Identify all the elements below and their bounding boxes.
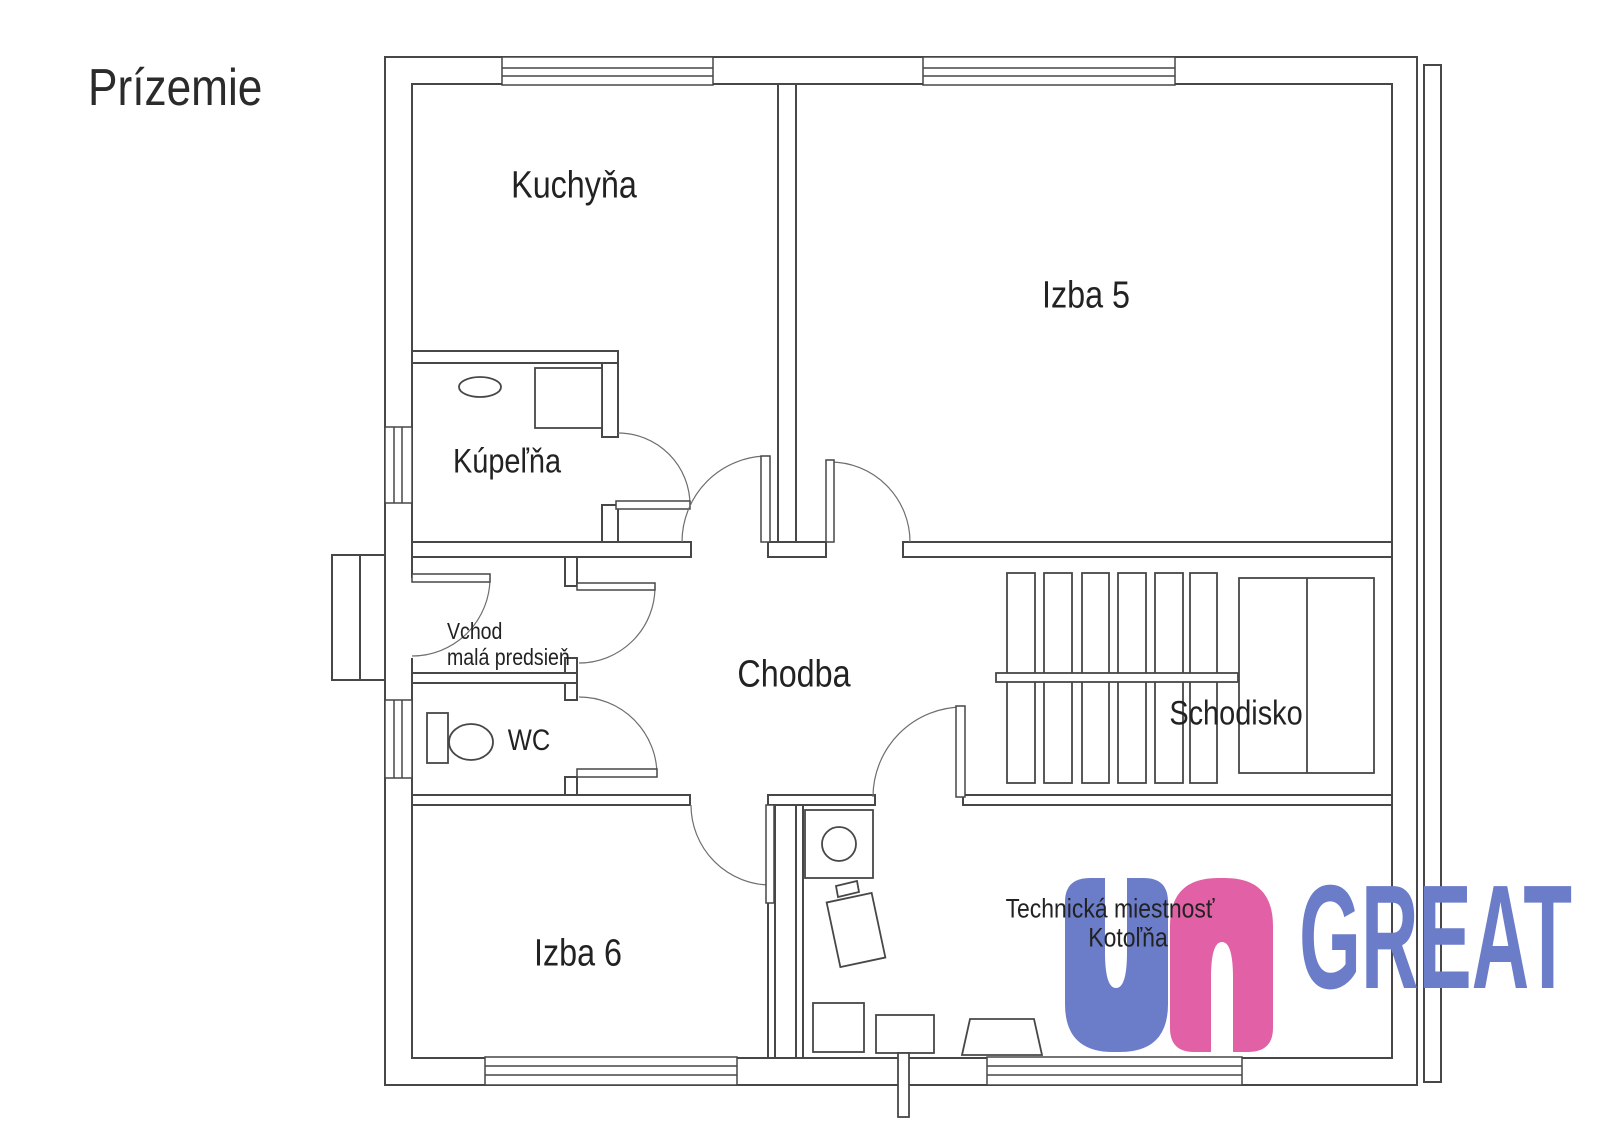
floor-plan-page: GREAT Prízemie Kuchyňa Izba 5 Kúpeľňa Vc… — [0, 0, 1600, 1131]
label-bathroom: Kúpeľňa — [453, 443, 561, 482]
tilted-equipment — [827, 893, 886, 967]
label-staircase: Schodisko — [1169, 695, 1302, 734]
logo: GREAT — [1065, 855, 1572, 1052]
door-room5 — [826, 460, 910, 542]
window-wc-left — [385, 700, 412, 778]
window-room5-top — [923, 57, 1175, 85]
label-entrance-line2: malá predsieň — [447, 644, 570, 670]
label-hallway: Chodba — [737, 654, 850, 697]
window-technical-bottom — [987, 1057, 1242, 1085]
page-title: Prízemie — [88, 58, 262, 118]
label-entrance: Vchod malá predsieň — [447, 618, 570, 670]
window-bathroom-left — [385, 427, 412, 503]
door-kitchen — [682, 456, 770, 542]
window-kitchen-top — [502, 57, 713, 85]
equipment-trapezoid — [962, 1019, 1042, 1055]
bathroom-sink-icon — [459, 377, 501, 397]
stair-handrail — [996, 673, 1238, 682]
toilet-icon — [427, 713, 493, 763]
boiler-connector — [836, 881, 859, 897]
label-room6: Izba 6 — [534, 933, 622, 976]
door-wc — [577, 697, 657, 777]
label-entrance-line1: Vchod — [447, 618, 570, 644]
window-room6-bottom — [485, 1057, 737, 1085]
label-wc: WC — [508, 724, 550, 758]
floor-plan-drawing: GREAT — [0, 0, 1600, 1131]
label-technical-line2: Kotoľňa — [1088, 923, 1167, 954]
exterior-pipe — [898, 1053, 909, 1117]
shower-square — [535, 368, 602, 428]
entrance-porch — [332, 555, 385, 680]
door-technical-room — [873, 706, 965, 797]
door-room6 — [691, 805, 774, 903]
equipment-box — [876, 1015, 934, 1053]
logo-wordmark: GREAT — [1299, 855, 1572, 1020]
label-kitchen: Kuchyňa — [511, 165, 637, 208]
label-technical-line1: Technická miestnosť — [1006, 894, 1215, 925]
boiler-icon — [805, 810, 873, 878]
label-room5: Izba 5 — [1042, 275, 1130, 318]
stair-landing — [1239, 578, 1374, 773]
equipment-square — [813, 1003, 864, 1052]
door-entrance-hall-to-hallway — [577, 583, 655, 663]
entrance-opening — [383, 578, 414, 658]
door-bathroom — [616, 433, 690, 509]
